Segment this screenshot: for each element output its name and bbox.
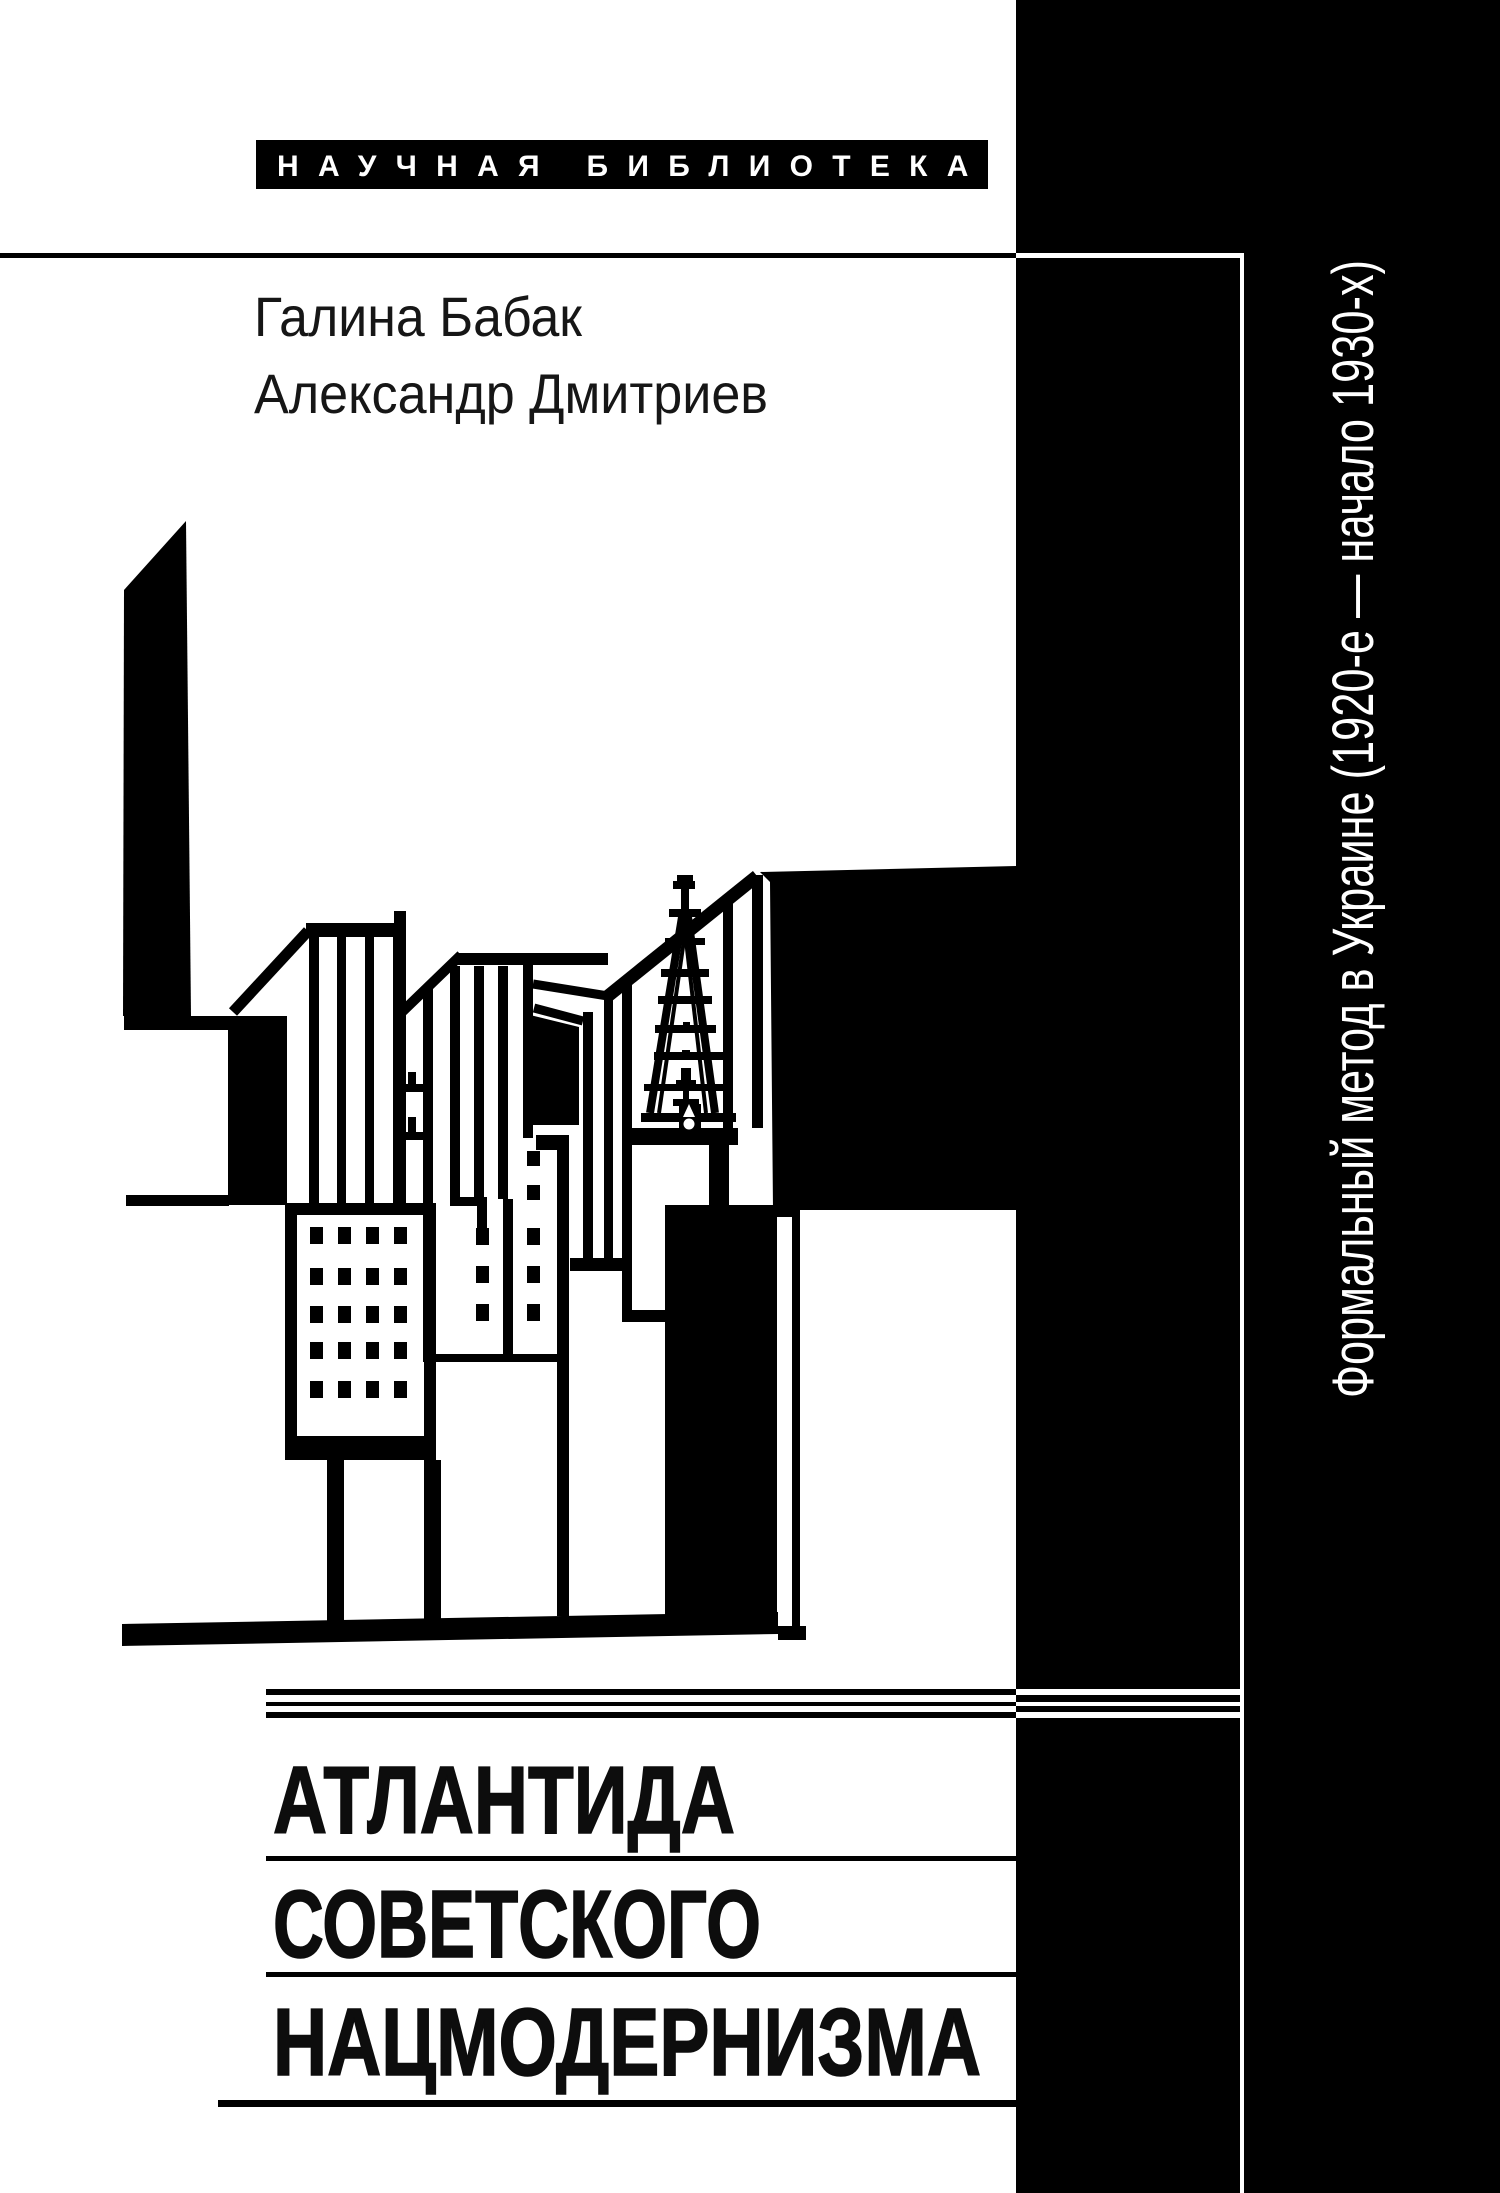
svg-text:Галина Бабак: Галина Бабак [254,285,582,348]
svg-text:НАУЧНАЯ БИБЛИОТЕКА: НАУЧНАЯ БИБЛИОТЕКА [277,150,988,183]
svg-text:АТЛАНТИДА: АТЛАНТИДА [273,1747,735,1854]
svg-text:Александр Дмитриев: Александр Дмитриев [254,362,768,425]
svg-text:Формальный метод в Украине (19: Формальный метод в Украине (1920-е — нач… [1321,260,1386,1398]
svg-text:СОВЕТСКОГО: СОВЕТСКОГО [273,1871,761,1978]
svg-text:НАЦМОДЕРНИЗМА: НАЦМОДЕРНИЗМА [273,1989,981,2096]
